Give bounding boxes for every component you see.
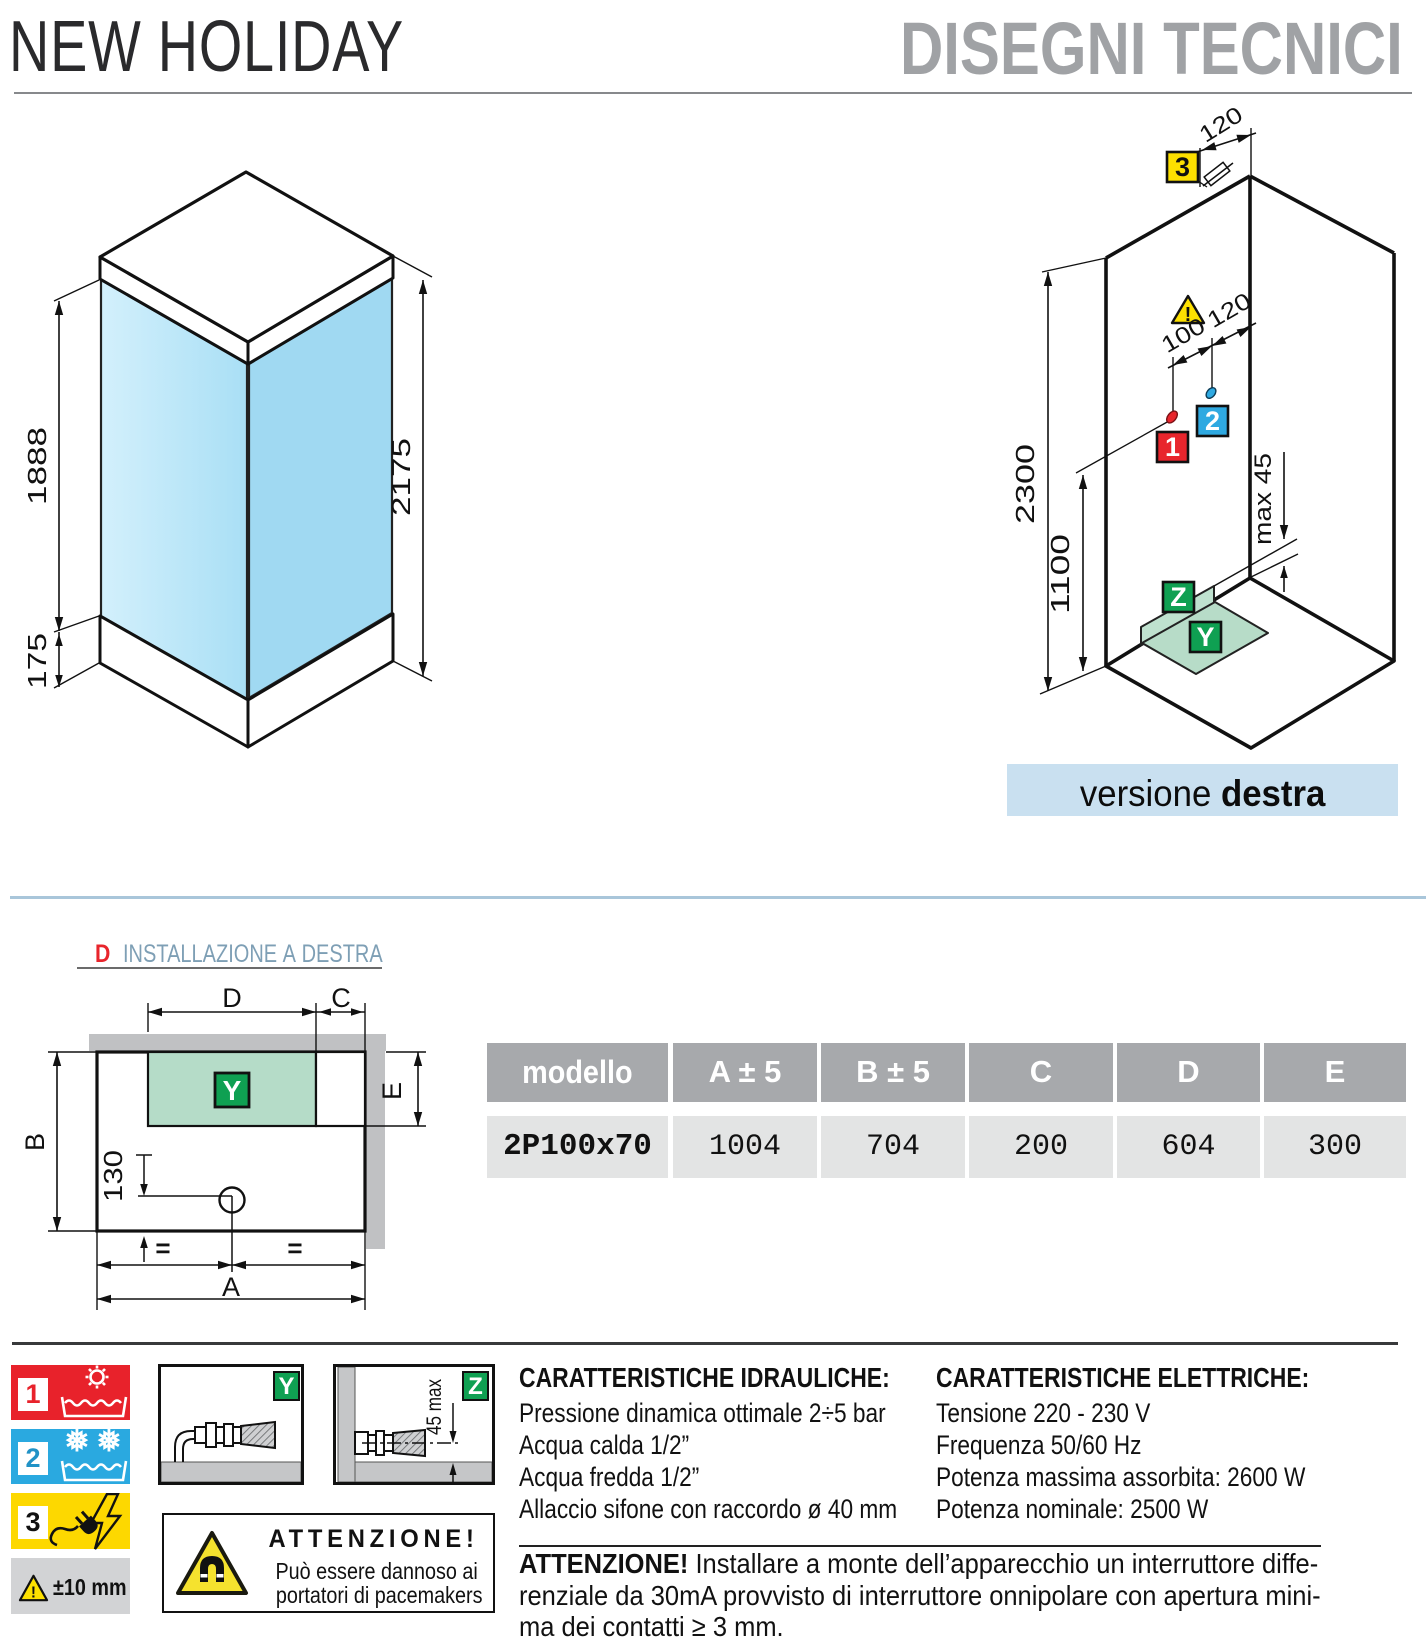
- svg-text:1: 1: [1165, 432, 1180, 462]
- svg-text:❅: ❅: [96, 1429, 121, 1458]
- svg-text:130: 130: [98, 1150, 128, 1202]
- svg-text:175: 175: [22, 633, 52, 689]
- svg-text:max 45: max 45: [1250, 453, 1277, 545]
- svg-text:❅: ❅: [64, 1429, 89, 1458]
- svg-text:1888: 1888: [22, 427, 52, 505]
- svg-text:A: A: [222, 1272, 240, 1302]
- svg-text:1100: 1100: [1045, 534, 1075, 614]
- svg-text:=: =: [155, 1233, 170, 1263]
- svg-text:!: !: [31, 1584, 36, 1601]
- svg-text:120: 120: [1203, 287, 1256, 333]
- svg-text:2175: 2175: [386, 438, 416, 516]
- svg-text:E: E: [377, 1082, 407, 1100]
- svg-text:D: D: [222, 983, 242, 1013]
- svg-text:B: B: [20, 1133, 50, 1151]
- svg-text:Y: Y: [1196, 622, 1214, 652]
- svg-text:2: 2: [1205, 406, 1220, 436]
- svg-text:C: C: [331, 983, 351, 1013]
- svg-text:Y: Y: [223, 1075, 242, 1106]
- svg-text:45 max: 45 max: [423, 1379, 446, 1435]
- svg-text:2300: 2300: [1010, 444, 1040, 524]
- svg-text:=: =: [287, 1233, 302, 1263]
- svg-text:3: 3: [1175, 152, 1190, 182]
- svg-text:Z: Z: [1170, 582, 1187, 612]
